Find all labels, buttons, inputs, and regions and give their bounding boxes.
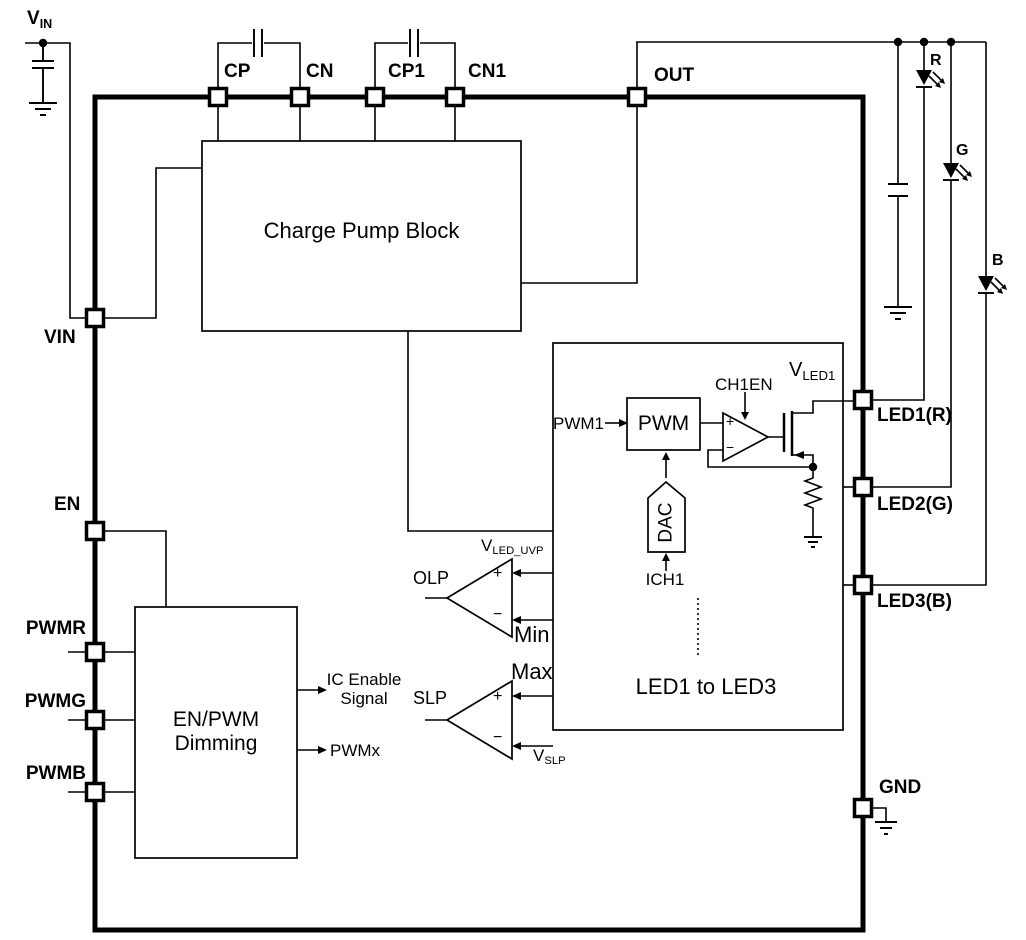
capacitor-plates <box>888 184 908 196</box>
slp-plus-sign: + <box>493 688 502 706</box>
vled1-wire <box>792 401 854 413</box>
out-net <box>521 38 986 283</box>
capacitor-plates <box>254 29 262 57</box>
led-string-red <box>872 42 945 400</box>
junction-dot <box>39 39 47 47</box>
max-label: Max <box>511 660 553 685</box>
olp-minus-sign: − <box>493 606 502 624</box>
pin-pwmr-square <box>87 644 104 661</box>
ich1-arrow <box>662 553 670 571</box>
pin-cp1-label: CP1 <box>388 61 425 82</box>
pin-vin-square <box>87 310 104 327</box>
ground-symbol <box>875 822 897 834</box>
output-capacitor <box>884 42 912 319</box>
pin-pwmb-square <box>87 784 104 801</box>
input-supply-net <box>25 39 87 318</box>
slp-label: SLP <box>413 688 447 708</box>
ic-enable-line1: IC Enable <box>324 670 404 689</box>
gnd-pin-ground <box>872 808 897 834</box>
pin-pwmg-label: PWMG <box>16 691 86 712</box>
ch1en-arrow <box>741 392 749 420</box>
charge-pump-block-label: Charge Pump Block <box>202 219 521 244</box>
pwm1-label: PWM1 <box>552 414 604 433</box>
pin-cn-label: CN <box>306 61 333 82</box>
ic-enable-label: IC Enable Signal <box>324 670 404 708</box>
sense-resistor <box>804 467 822 547</box>
input-capacitor <box>32 47 54 103</box>
opamp-minus-sign: − <box>726 440 734 456</box>
dimming-label-line1: EN/PWM <box>135 708 297 732</box>
pin-gnd-square <box>855 800 872 817</box>
olp-plus-sign: + <box>493 565 502 583</box>
dimming-block-label: EN/PWM Dimming <box>135 708 297 755</box>
capacitor-plates <box>410 29 418 57</box>
pwm-box-label: PWM <box>627 412 700 436</box>
pin-cp-label: CP <box>224 61 250 82</box>
pin-pwmb-label: PWMB <box>16 763 86 784</box>
led-g-label: G <box>956 142 968 160</box>
block-diagram: VIN CP CN CP1 CN1 OUT VIN EN PWMR PWMG P… <box>0 0 1026 940</box>
pin-cp1-square <box>367 89 384 106</box>
channel-opamp <box>700 413 810 467</box>
vin-supply-label: VIN <box>27 8 52 29</box>
led-channels-label: LED1 to LED3 <box>598 675 814 700</box>
vin-pin-wire <box>104 168 202 318</box>
pin-led2-square <box>855 479 872 496</box>
flying-capacitor-1 <box>218 29 300 141</box>
pin-cn1-label: CN1 <box>468 61 506 82</box>
led-channels-block-outline <box>553 343 843 730</box>
led-emission-arrows-icon <box>929 72 941 84</box>
pin-out-label: OUT <box>654 65 694 86</box>
olp-label: OLP <box>413 568 449 588</box>
pin-cn1-square <box>447 89 464 106</box>
ich1-label: ICH1 <box>642 570 688 589</box>
flying-capacitor-2 <box>375 29 455 141</box>
led-emission-arrows-icon <box>991 278 1003 290</box>
pin-cp-square <box>210 89 227 106</box>
pin-vin-label: VIN <box>44 327 76 348</box>
en-pin-wire <box>104 531 166 607</box>
ground-symbol <box>29 103 57 115</box>
vled-uvp-label: VLED_UVP <box>481 536 543 555</box>
dac-label: DAC <box>655 503 676 543</box>
vled1-label: VLED1 <box>789 359 835 381</box>
ground-symbol <box>804 537 822 547</box>
pin-cn-square <box>292 89 309 106</box>
pin-led2-label: LED2(G) <box>877 494 953 515</box>
dimming-output-arrows <box>297 686 327 754</box>
pin-led1-label: LED1(R) <box>877 405 952 426</box>
circuit-graphics <box>0 0 1026 940</box>
slp-minus-sign: − <box>493 729 502 747</box>
pin-en-square <box>87 523 104 540</box>
pin-pwmr-label: PWMR <box>16 618 86 639</box>
led-b-label: B <box>992 252 1004 270</box>
pin-led1-square <box>855 392 872 409</box>
pin-gnd-label: GND <box>879 777 921 798</box>
charge-pump-to-led-block-wire <box>408 331 553 531</box>
min-label: Min <box>514 623 549 648</box>
ic-enable-line2: Signal <box>324 689 404 708</box>
pin-led3-label: LED3(B) <box>877 591 952 612</box>
led-emission-arrows-icon <box>956 165 968 177</box>
pwm1-arrow <box>605 419 628 427</box>
pin-out-square <box>629 89 646 106</box>
ch1en-label: CH1EN <box>715 375 773 394</box>
pin-en-label: EN <box>54 494 80 515</box>
vslp-label: VSLP <box>533 746 566 765</box>
led-r-label: R <box>930 52 942 70</box>
pin-led3-square <box>855 577 872 594</box>
ground-symbol <box>884 307 912 319</box>
pin-pwmg-square <box>87 712 104 729</box>
pwmx-label: PWMx <box>330 741 380 760</box>
dimming-label-line2: Dimming <box>135 732 297 756</box>
opamp-plus-sign: + <box>726 414 734 430</box>
